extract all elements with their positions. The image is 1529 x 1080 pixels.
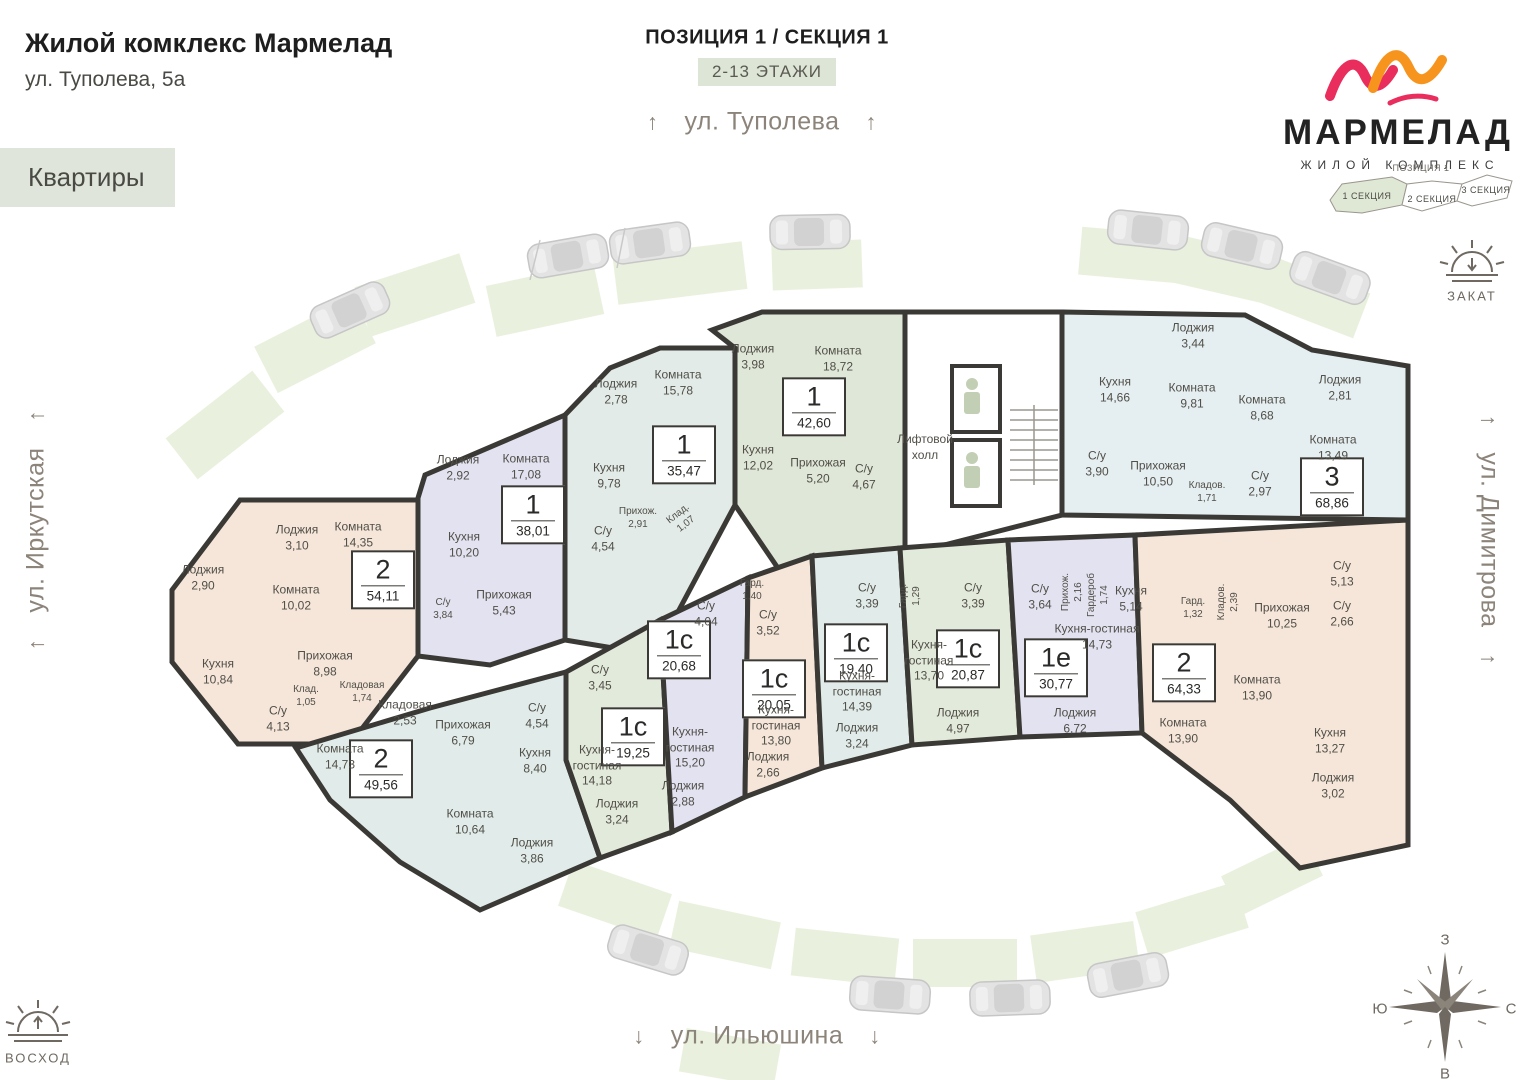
room-label: Прихожая5,20 [790, 455, 846, 486]
room-label: Лоджия2,90 [182, 562, 225, 593]
room-label: Комната18,72 [815, 343, 862, 374]
room-label: С/у3,90 [1085, 448, 1108, 479]
up-arrow-icon: ↑ [1477, 389, 1502, 453]
up-arrow-icon: ↑ [840, 110, 904, 135]
room-label: Комната17,08 [503, 451, 550, 482]
room-label: Кухня-гостиная13,80 [739, 703, 813, 750]
apartment-badge-1-38-01[interactable]: 138,01 [501, 485, 565, 544]
room-label: С/у2,97 [1248, 468, 1271, 499]
compass-south-label: Ю [1372, 1001, 1387, 1018]
room-label: Лоджия2,81 [1319, 372, 1362, 403]
logo-wave-icon [1330, 55, 1442, 103]
room-label: Кухня-гостиная14,73 [1055, 621, 1140, 652]
apartment-badge-1-35-47[interactable]: 135,47 [652, 425, 716, 484]
car-icon [1106, 209, 1189, 251]
minimap-position-label: ПОЗИЦИЯ 1 [1392, 163, 1449, 173]
room-label: Кухня14,66 [1099, 374, 1131, 405]
room-label: Лоджия3,24 [596, 796, 639, 827]
room-label: Лоджия3,86 [511, 835, 554, 866]
room-label: Лоджия3,44 [1172, 320, 1215, 351]
up-arrow-icon: ↑ [24, 613, 49, 677]
room-label: Лоджия3,24 [836, 720, 879, 751]
apartments-tab[interactable]: Квартиры [0, 148, 175, 207]
car-icon [770, 214, 851, 249]
room-label: Комната13,90 [1234, 672, 1281, 703]
room-label: Комната14,35 [335, 519, 382, 550]
car-icon [526, 232, 611, 279]
sunrise-icon [6, 1000, 70, 1041]
up-arrow-icon: ↑ [24, 384, 49, 448]
room-label: С/у3,39 [961, 580, 984, 611]
car-icon [849, 975, 931, 1014]
elevator-hall-label: Лифтовой холл [889, 431, 961, 463]
room-label: С/у4,67 [852, 461, 875, 492]
room-label: Прихожая8,98 [297, 648, 353, 679]
apartment-badge-3-68-86[interactable]: 368,86 [1300, 457, 1364, 516]
room-label: Прихож.2,16 [1059, 573, 1085, 611]
position-section-title: ПОЗИЦИЯ 1 / СЕКЦИЯ 1 [645, 27, 889, 50]
room-label: С/у3,52 [756, 607, 779, 638]
room-label: Комната15,78 [655, 367, 702, 398]
room-label: Кухня12,02 [742, 442, 774, 473]
room-label: С/у3,45 [588, 662, 611, 693]
logo-title: МАРМЕЛАД [1283, 113, 1513, 153]
room-label: С/у4,54 [591, 523, 614, 554]
room-label: Кухня-гостиная14,39 [820, 669, 894, 716]
parking-stall [166, 371, 285, 480]
room-label: Комната10,64 [447, 806, 494, 837]
room-label: Кладовая2,53 [378, 697, 432, 728]
minimap-section3-label: 3 СЕКЦИЯ [1462, 185, 1511, 195]
up-arrow-icon: ↑ [1477, 628, 1502, 692]
sunset-label: ЗАКАТ [1447, 289, 1497, 304]
room-label: Лоджия3,02 [1312, 770, 1355, 801]
page-address: ул. Туполева, 5а [25, 68, 185, 92]
sunset-icon [1440, 240, 1504, 281]
room-label: С/у2,66 [1330, 598, 1353, 629]
room-label: Гард.1,29 [897, 584, 923, 608]
apartment-badge-1-42-60[interactable]: 142,60 [782, 377, 846, 436]
compass-east-label: В [1440, 1066, 1450, 1080]
sunrise-label: ВОСХОД [5, 1051, 71, 1066]
apartment-badge-2-54-11[interactable]: 254,11 [351, 550, 415, 609]
room-label: Кухня10,84 [202, 656, 234, 687]
room-label: Кухня-гостиная13,70 [892, 638, 966, 685]
room-label: Кладов.1,71 [1189, 479, 1226, 505]
room-label: С/у5,13 [1330, 558, 1353, 589]
room-label: Лоджия4,97 [937, 705, 980, 736]
room-label: Гард.1,40 [740, 577, 764, 603]
room-label: С/у3,84 [433, 596, 452, 622]
minimap-section2-label: 2 СЕКЦИЯ [1408, 194, 1457, 204]
down-arrow-icon: ↓ [607, 1024, 671, 1049]
car-icon [969, 980, 1050, 1017]
room-label: Комната13,49 [1310, 432, 1357, 463]
room-label: Лоджия3,98 [732, 341, 775, 372]
street-top: ↑ул. Туполева↑ [621, 108, 903, 137]
room-label: С/у3,64 [1028, 581, 1051, 612]
parking-stall [913, 939, 1017, 987]
room-label: Прихож.2,91 [619, 505, 657, 531]
page-title: Жилой комклекс Мармелад [25, 28, 392, 59]
up-arrow-icon: ↑ [621, 110, 685, 135]
room-label: Кухня-гостиная15,20 [653, 725, 727, 772]
room-label: Прихожая10,25 [1254, 600, 1310, 631]
room-label: Прихожая5,43 [476, 587, 532, 618]
room-label: Прихожая10,50 [1130, 458, 1186, 489]
room-label: Кухня13,27 [1314, 725, 1346, 756]
room-label: Лоджия2,78 [595, 376, 638, 407]
room-label: Гард.1,32 [1181, 595, 1205, 621]
room-label: Лоджия3,10 [276, 522, 319, 553]
street-right: ↑ул. Димитрова↑ [1475, 389, 1504, 691]
room-label: Клад.1,05 [293, 683, 319, 709]
room-label: С/у4,13 [266, 703, 289, 734]
compass-west-label: З [1440, 932, 1449, 949]
floorplan-page: Жилой комклекс Мармелад ул. Туполева, 5а… [0, 0, 1529, 1080]
street-left: ↑ул. Иркутская↑ [22, 384, 51, 676]
room-label: Лоджия2,92 [437, 452, 480, 483]
room-label: Комната9,81 [1169, 380, 1216, 411]
room-label: Кухня5,14 [1115, 583, 1147, 614]
floors-badge: 2-13 ЭТАЖИ [698, 58, 836, 86]
room-label: Лоджия6,72 [1054, 705, 1097, 736]
room-label: С/у3,39 [855, 580, 878, 611]
room-label: Комната14,73 [317, 741, 364, 772]
room-label: Комната8,68 [1239, 392, 1286, 423]
room-label: Комната13,90 [1160, 715, 1207, 746]
room-label: Комната10,02 [273, 582, 320, 613]
room-label: Кухня8,40 [519, 745, 551, 776]
compass-icon [1389, 952, 1501, 1062]
room-label: Кладов.2,39 [1215, 584, 1241, 621]
room-label: С/у4,54 [525, 700, 548, 731]
room-label: Лоджия2,88 [662, 778, 705, 809]
street-bottom: ↓ул. Ильюшина↓ [607, 1022, 907, 1051]
compass-north-label: С [1506, 1001, 1517, 1018]
apartment-badge-2-64-33[interactable]: 264,33 [1152, 643, 1216, 702]
minimap-section1-label: 1 СЕКЦИЯ [1343, 191, 1392, 201]
room-label: Кухня9,78 [593, 460, 625, 491]
room-label: Лоджия2,66 [747, 749, 790, 780]
room-label: Гардероб1,74 [1085, 573, 1111, 617]
down-arrow-icon: ↓ [843, 1024, 907, 1049]
room-label: Кухня-гостиная14,18 [560, 743, 634, 790]
room-label: Кухня10,20 [448, 529, 480, 560]
room-label: С/у4,04 [694, 598, 717, 629]
room-label: Прихожая6,79 [435, 717, 491, 748]
